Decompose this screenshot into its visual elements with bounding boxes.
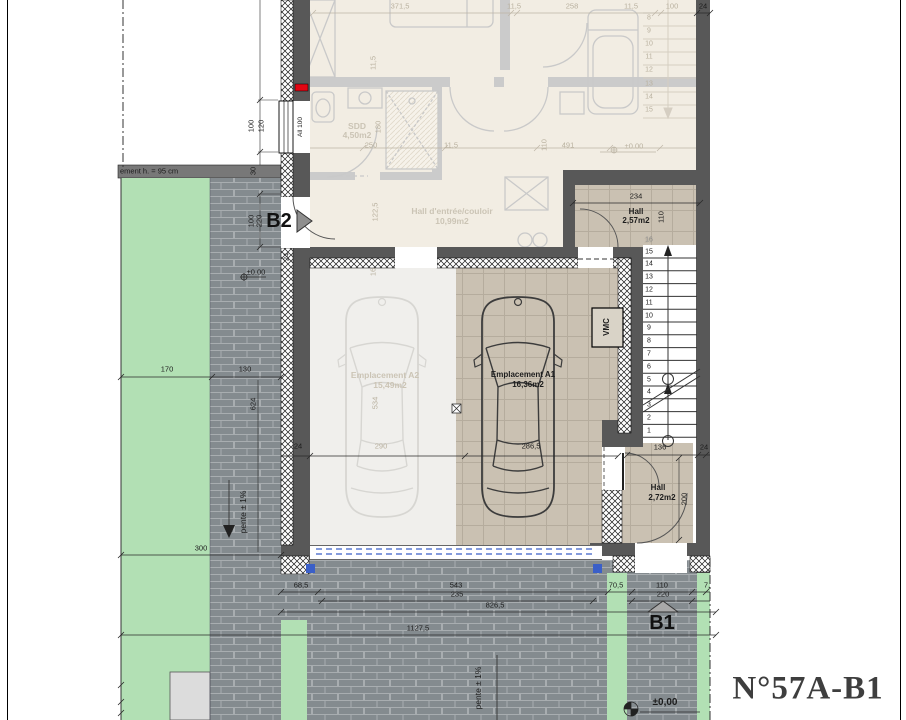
stair-step-9: 9 <box>647 325 651 332</box>
stair-ghost-step-11: 11 <box>645 54 652 61</box>
dim-20: 624 <box>249 398 257 411</box>
stair-ghost-step-14: 14 <box>645 93 653 100</box>
dim-0: 24 <box>699 2 707 10</box>
dim-8: 68,5 <box>294 581 309 589</box>
door-b1-opening <box>635 543 687 573</box>
dim-ghost-0: 371,5 <box>391 2 410 10</box>
brick-area-bottom <box>281 560 710 720</box>
brick-path-left <box>210 178 281 720</box>
unit-marker-b1: B1 <box>649 613 675 633</box>
red-marker <box>295 84 308 91</box>
parking-a2-floor <box>310 268 456 545</box>
dim-ghost-13: 290 <box>375 442 388 450</box>
stair-ghost-step-9: 9 <box>647 28 651 35</box>
dim-ghost-1: 11,5 <box>507 2 521 10</box>
stair-step-2: 2 <box>647 414 651 421</box>
window-all100 <box>277 101 310 153</box>
slope-note-bottom: pente ± 1% <box>474 667 483 710</box>
stair-step-15: 15 <box>645 248 653 255</box>
unit-marker-b2: B2 <box>266 211 292 231</box>
dim-ghost-14: 534 <box>371 397 379 410</box>
plan-number: N°57A-B1 <box>732 673 883 706</box>
level-left: ±0.00 <box>247 268 266 276</box>
stair-step-11: 11 <box>645 299 652 306</box>
stair-ghost-step-10: 10 <box>645 41 653 48</box>
dim-5: 200 <box>680 493 688 506</box>
parking-a2-name: Emplacement A2 <box>351 371 419 380</box>
dim-17: 170 <box>161 365 174 373</box>
garden-wall-note: ement h. = 95 cm <box>120 167 178 175</box>
stair-step-16: 16 <box>645 237 653 244</box>
dim-18: 130 <box>239 365 252 373</box>
dim-7: 24 <box>294 442 302 450</box>
entry-hall-name: Hall d'entrée/couloir <box>411 207 492 216</box>
stair-ghost-step-13: 13 <box>645 80 653 87</box>
level-ghost: ±0.00 <box>625 142 644 150</box>
dim-25: 30 <box>249 167 257 175</box>
stair-ghost-step-12: 12 <box>645 67 653 74</box>
dim-24: 220 <box>255 215 263 228</box>
concrete-pad <box>170 672 210 720</box>
slope-note-left: pente ± 1% <box>239 491 248 534</box>
dim-3: 136 <box>654 443 667 451</box>
door-garage-hall <box>602 447 625 490</box>
dim-6: 286,5 <box>522 442 541 450</box>
dim-ghost-10: 122,5 <box>371 203 379 222</box>
dim-4: 24 <box>700 443 708 451</box>
stair-step-14: 14 <box>645 261 653 268</box>
dim-26: 24 <box>282 253 290 261</box>
dim-ghost-8: 110 <box>540 139 548 151</box>
lawn-left <box>121 178 210 720</box>
vmc-label: VMC <box>603 318 611 336</box>
hall-upper-name: Hall <box>629 208 644 216</box>
garage-door-opening <box>310 545 602 560</box>
dim-ghost-7: 491 <box>562 141 575 149</box>
dim-ghost-12: 16 <box>369 268 377 276</box>
dim-12: 7, <box>704 581 710 589</box>
stair-step-6: 6 <box>647 363 651 370</box>
entry-hall-area: 10,99m2 <box>435 217 469 226</box>
dim-ghost-2: 258 <box>566 2 579 10</box>
stair-step-3: 3 <box>647 402 651 409</box>
hall-lower-name: Hall <box>651 484 666 492</box>
dim-15: 826,5 <box>486 601 505 609</box>
stair-step-5: 5 <box>647 376 651 383</box>
dim-19: 300 <box>195 544 208 552</box>
sdd-area: 4,50m2 <box>343 131 372 140</box>
stair-step-12: 12 <box>645 286 653 293</box>
dim-ghost-3: 11,5 <box>624 2 638 10</box>
stair-ghost-step-8: 8 <box>647 15 651 22</box>
hall-upper-area: 2,57m2 <box>622 217 649 225</box>
stair-step-10: 10 <box>645 312 653 319</box>
dim-ghost-11: 11,5 <box>369 56 377 70</box>
stair-step-4: 4 <box>647 389 651 396</box>
floor-plan-drawing <box>0 0 906 720</box>
stair-step-7: 7 <box>647 350 651 357</box>
dim-11: 110 <box>656 581 668 589</box>
dim-1: 234 <box>630 192 643 200</box>
dim-21: 100 <box>247 120 255 133</box>
stair-step-8: 8 <box>647 338 651 345</box>
dim-13: 235 <box>451 590 464 598</box>
dim-2: 110 <box>657 211 665 223</box>
dim-16: 1127,5 <box>407 624 429 632</box>
dim-22: 120 <box>257 120 265 133</box>
parking-a1-name: Emplacement A1 <box>491 371 555 379</box>
green-strip-b <box>607 573 627 720</box>
stair-step-1: 1 <box>647 427 651 434</box>
dim-9: 543 <box>450 581 463 589</box>
dim-ghost-5: 250 <box>365 141 378 149</box>
dim-ghost-9: 180 <box>374 121 382 134</box>
window-sill-label: All 100 <box>298 116 305 138</box>
stair-step-13: 13 <box>645 274 653 281</box>
stair-ghost-step-15: 15 <box>645 106 653 113</box>
floor-plan-canvas: N°57A-B1 B2 B1 Hall 2,57m2 Hall 2,72m2 E… <box>0 0 906 720</box>
dim-10: 70,5 <box>609 581 624 589</box>
hall-lower-area: 2,72m2 <box>648 494 675 502</box>
parking-a1-area: 16,36m2 <box>512 381 544 389</box>
level-main: ±0,00 <box>653 698 678 708</box>
dim-ghost-4: 100 <box>666 2 679 10</box>
parking-a2-area: 15,49m2 <box>373 381 407 390</box>
dim-ghost-6: 11,5 <box>444 141 458 149</box>
dim-14: 220 <box>657 590 670 598</box>
